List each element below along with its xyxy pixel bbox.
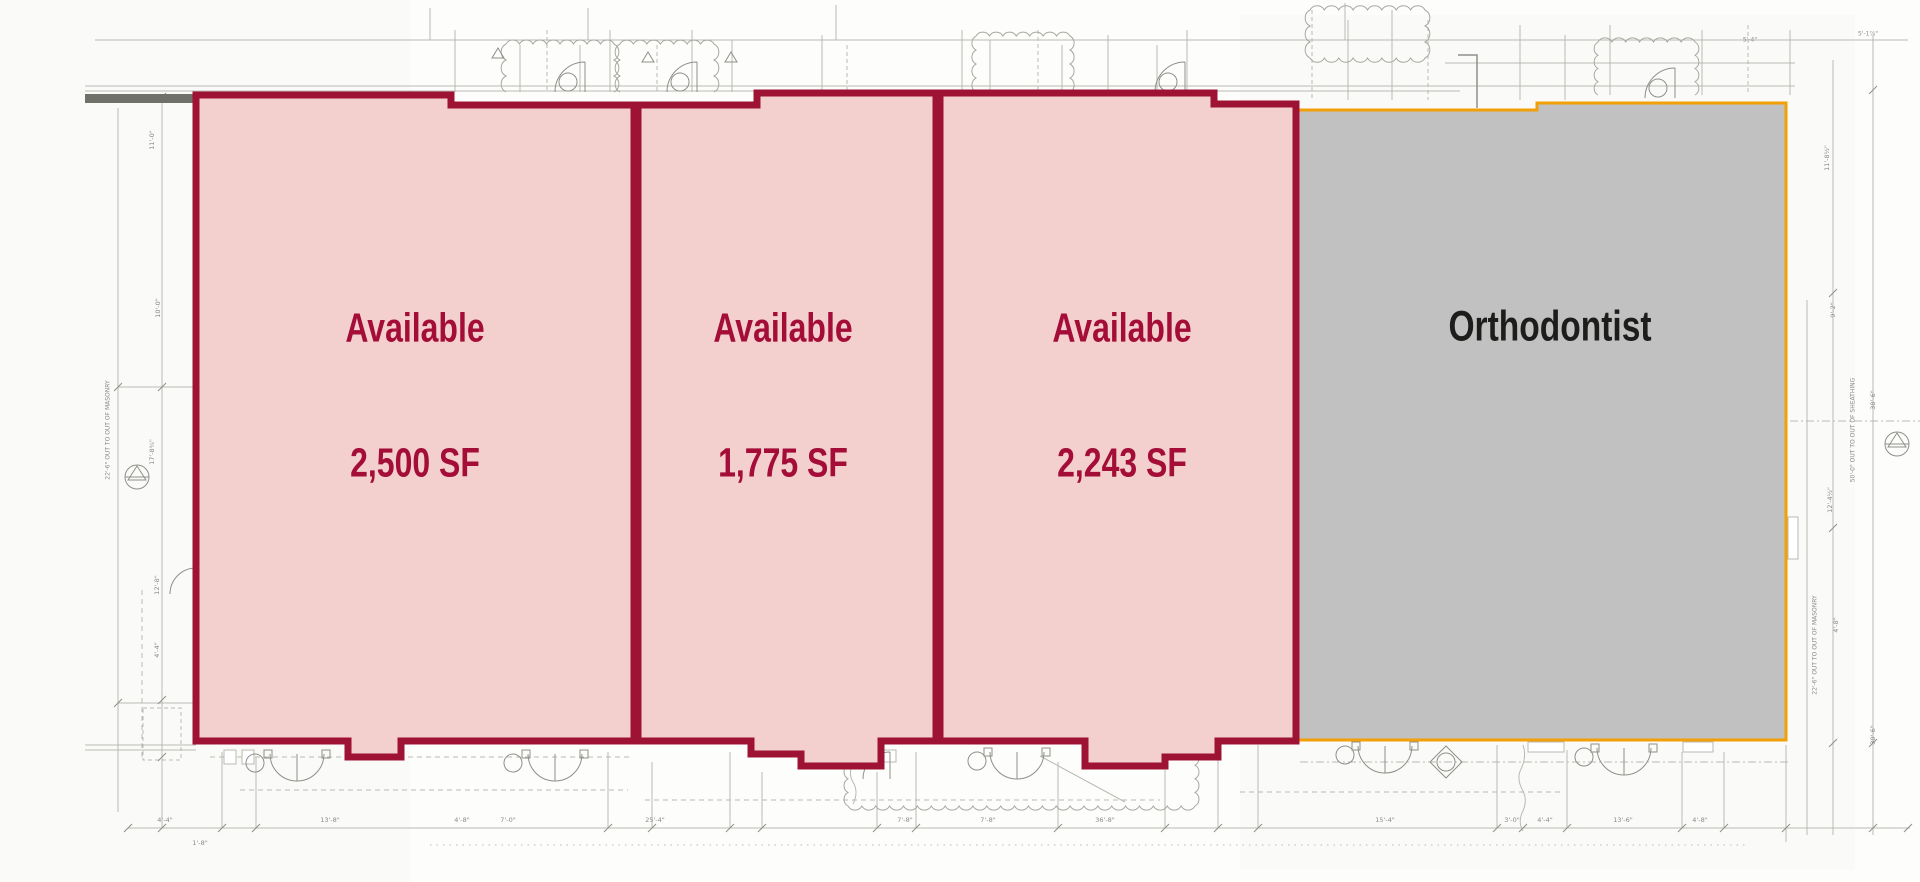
suite-3-area-label: 2,243 SF (1057, 440, 1187, 487)
suite-1-area-label: 2,500 SF (350, 440, 480, 487)
suite-3-status-label: Available (1052, 305, 1191, 352)
floorplan-page: Available 2,500 SF Available 1,775 SF Av… (0, 0, 1920, 882)
floorplan-canvas (0, 0, 1920, 882)
wall-bar (85, 94, 196, 103)
suite-1-region (196, 95, 634, 757)
suite-4-region (1296, 103, 1786, 740)
suite-2-status-label: Available (713, 305, 852, 352)
suite-2-region (638, 93, 936, 766)
suite-4-tenant-label: Orthodontist (1448, 303, 1651, 352)
suite-1-status-label: Available (345, 305, 484, 352)
suite-2-area-label: 1,775 SF (718, 440, 848, 487)
suite-3-region (940, 93, 1296, 766)
